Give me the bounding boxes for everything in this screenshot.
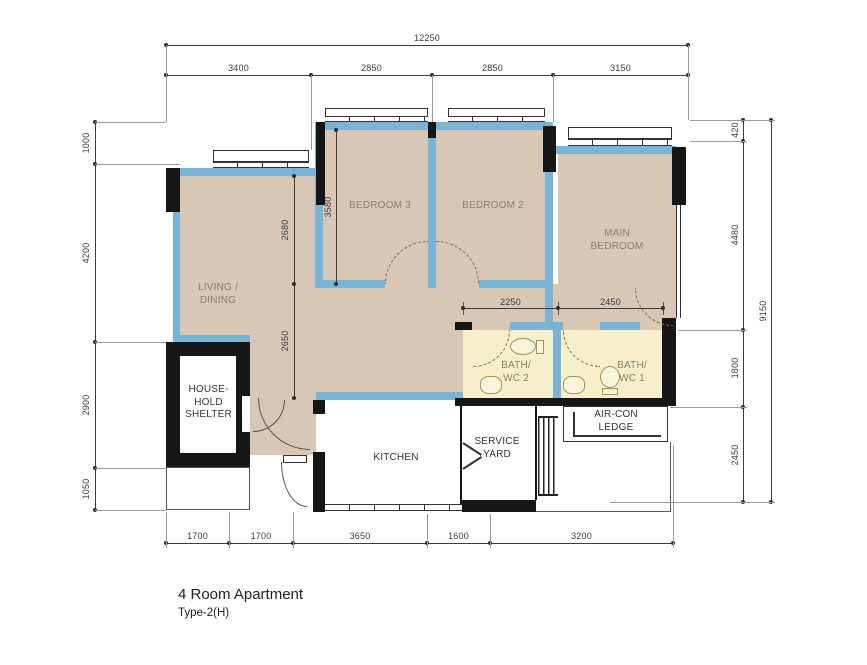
dim-top-3: 2850 [432, 62, 553, 74]
entry-door-leaf [283, 455, 307, 463]
dim-top-4: 3150 [553, 62, 688, 74]
bath1-basin [563, 376, 585, 394]
main-bedroom-window [568, 139, 672, 146]
dim-bottom-1: 1700 [166, 530, 229, 542]
bath1-toilet-base [602, 388, 618, 395]
extension-line [690, 120, 775, 121]
extension-line [95, 342, 166, 343]
dim-bottom-2: 1700 [229, 530, 293, 542]
dim-line-living-vertical [294, 176, 295, 398]
dim-right-3: 1800 [729, 338, 741, 398]
plan-type: Type-2(H) [178, 607, 229, 619]
service-yard-label: SERVICE YARD [462, 436, 532, 461]
floor-plan-sheet: LIVING / DINING BEDROOM 3 BEDROOM 2 MAIN… [0, 0, 867, 665]
dim-bottom-5: 3200 [490, 530, 673, 542]
yard-right-wall [535, 406, 537, 500]
dim-line-baths [463, 308, 663, 309]
dim-left-3: 2900 [80, 375, 92, 435]
bedroom-divider-top-post [428, 122, 436, 138]
bedroom2-label: BEDROOM 2 [443, 200, 543, 213]
main-bedroom-window-ledge [568, 127, 672, 139]
dim-line-top-overall [166, 45, 688, 46]
extension-line [427, 514, 428, 548]
dim-overall-width: 12250 [166, 32, 688, 44]
dim-bottom-3: 3650 [293, 530, 427, 542]
dim-line-bedroom3 [336, 130, 337, 284]
dim-left-1: 1000 [80, 113, 92, 173]
bedroom3-window [325, 116, 428, 122]
extension-line [95, 468, 166, 469]
dim-right-2: 4480 [729, 205, 741, 265]
extension-line [690, 141, 747, 142]
dim-tick [334, 128, 338, 132]
dim-bath1-width: 2450 [558, 296, 663, 308]
bedroom2-main-junction-post [543, 126, 556, 172]
extension-line [311, 75, 312, 150]
bath-wc2-label: BATH/ WC 2 [492, 360, 540, 385]
dim-bedroom3-depth: 3580 [322, 177, 334, 237]
extension-line [95, 122, 166, 123]
main-bedroom-label: MAIN BEDROOM [567, 228, 667, 253]
extension-line [688, 45, 689, 120]
bath-wc1-label: BATH/ WC 1 [608, 360, 656, 385]
extension-line [490, 514, 491, 548]
dim-line-top-segments [166, 75, 688, 76]
living-bottom-wall [173, 335, 250, 342]
bath-bottom-wall [455, 398, 676, 406]
drying-rack [538, 416, 558, 496]
dim-right-4: 2450 [729, 425, 741, 485]
dim-tick [292, 396, 296, 400]
bedroom3-bottom-wall [315, 280, 385, 288]
kitchen-window [325, 504, 462, 511]
dim-living-upper: 2680 [279, 200, 291, 260]
entry-door-arc-2 [281, 462, 307, 507]
dim-top-1: 3400 [166, 62, 311, 74]
dim-bottom-4: 1600 [427, 530, 490, 542]
bedroom2-window [448, 116, 545, 122]
dim-tick [292, 282, 296, 286]
extension-line [673, 445, 674, 548]
extension-line [166, 512, 167, 548]
main-bedroom-side-window [676, 205, 681, 318]
extension-line [432, 75, 433, 122]
kitchen-left-post-top [313, 400, 325, 414]
extension-line [670, 407, 747, 408]
bedroom3-label: BEDROOM 3 [330, 200, 430, 213]
bath2-toilet-tank [536, 340, 544, 354]
bath1-top-wall-b [600, 322, 640, 330]
living-dining-label: LIVING / DINING [168, 282, 268, 307]
dim-line-right-overall [771, 120, 772, 502]
dim-line-bottom [166, 543, 673, 544]
extension-line [166, 45, 167, 122]
living-left-top-post [166, 168, 180, 212]
extension-line [610, 502, 775, 503]
dim-tick [292, 174, 296, 178]
bath1-right-wall [662, 318, 676, 406]
extension-line [553, 75, 554, 122]
extension-line [95, 164, 180, 165]
aircon-bottom-line [536, 511, 671, 512]
service-yard-bottom-wall [462, 500, 536, 512]
dim-bath2-width: 2250 [463, 296, 558, 308]
kitchen-label: KITCHEN [346, 452, 446, 465]
household-shelter-door-gap [242, 396, 250, 432]
dim-living-lower: 2650 [279, 311, 291, 371]
bath2-toilet-bowl [510, 338, 536, 355]
kitchen-top-wall [316, 392, 463, 400]
household-shelter-label: HOUSE- HOLD SHELTER [181, 384, 236, 422]
dim-left-4: 1050 [80, 459, 92, 519]
bath1-top-wall-a [553, 322, 563, 330]
dim-line-right-segments [743, 120, 744, 502]
living-window-ledge [213, 150, 309, 162]
main-bedroom-top-wall [553, 146, 676, 154]
bath-divider-wall [553, 330, 561, 398]
dim-line-left [95, 122, 96, 510]
living-window [213, 162, 309, 168]
hall-floor-2 [316, 342, 463, 392]
shelter-lower-ledge [166, 467, 250, 510]
living-top-wall [180, 168, 323, 176]
bath2-left-post [455, 322, 472, 330]
bedroom2-bottom-wall [479, 280, 545, 288]
dim-top-2: 2850 [311, 62, 432, 74]
dim-right-1: 420 [729, 100, 741, 160]
aircon-ledge-label: AIR-CON LEDGE [566, 409, 666, 434]
dim-left-2: 4200 [80, 223, 92, 283]
main-right-top-post [672, 147, 686, 205]
extension-line [678, 330, 747, 331]
dim-tick [334, 282, 338, 286]
kitchen-left-post-bottom [313, 452, 325, 512]
extension-line [229, 512, 230, 548]
plan-title: 4 Room Apartment [178, 586, 303, 603]
extension-line [293, 512, 294, 548]
dim-overall-height: 9150 [757, 281, 769, 341]
bath2-top-wall [510, 322, 553, 330]
extension-line [95, 510, 166, 511]
